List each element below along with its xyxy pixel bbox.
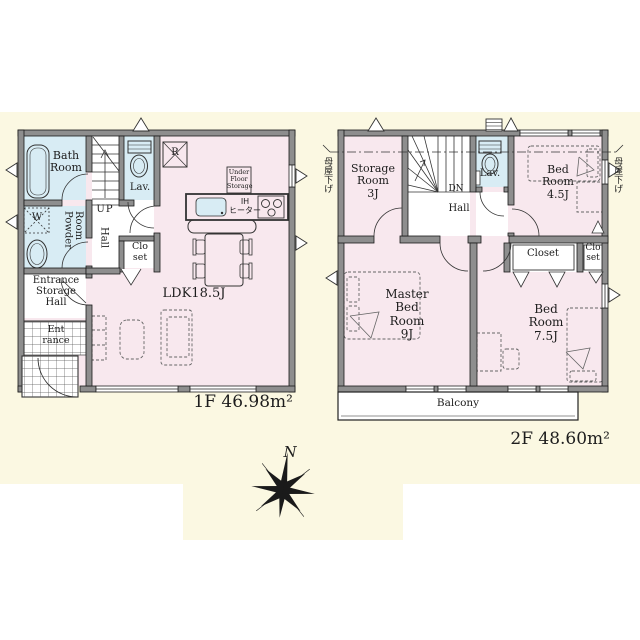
refrigerator-label: R [166,147,184,158]
room-label-entrance: Ent rance [41,325,71,346]
room-label-entrance-storage: Entrance Storage Hall [27,275,85,309]
stairs-up-label: UP [92,204,118,215]
stairs-down-label: DN [444,184,468,194]
room-label-lav2: Lav. [474,168,506,179]
room-label-lav1: Lav. [124,182,156,193]
under-floor-storage-label: Under Floor Storage [227,169,251,191]
room-label-closet2: Closet [514,248,572,259]
floorplan-image: Bath Room W Powder Room UP Hall Lav. Clo… [0,0,640,640]
room-label-hall1: Hall [98,227,109,248]
room-label-ldk: LDK18.5J [153,287,235,302]
roof-note-left: 母屋下げ [322,157,332,193]
room-label-bed75: Bed Room 7.5J [520,303,572,343]
roof-note-right: 母屋下げ [612,157,622,193]
floor1-area-label: 1F 46.98m² [158,393,293,412]
room-label-bed45: Bed Room 4.5J [534,164,582,201]
washer-label: W [27,212,47,223]
compass-north-label: N [283,444,297,461]
room-label-closet1: Clo set [126,242,154,263]
entrance-porch [22,356,78,397]
balcony-label: Balcony [415,398,501,410]
ih-heater-label: IH ヒーター [229,198,261,216]
room-label-closet2-small: Clo set [581,243,605,263]
room-label-powder: Powder Room [62,211,83,249]
room-label-hall2: Hall [441,203,477,214]
room-label-bath: Bath Room [40,150,92,175]
lavatory2-floor [476,136,508,187]
room-label-storage: Storage Room 3J [344,163,402,200]
room-label-master: Master Bed Room 9J [380,288,434,342]
floor2-area-label: 2F 48.60m² [470,430,610,449]
